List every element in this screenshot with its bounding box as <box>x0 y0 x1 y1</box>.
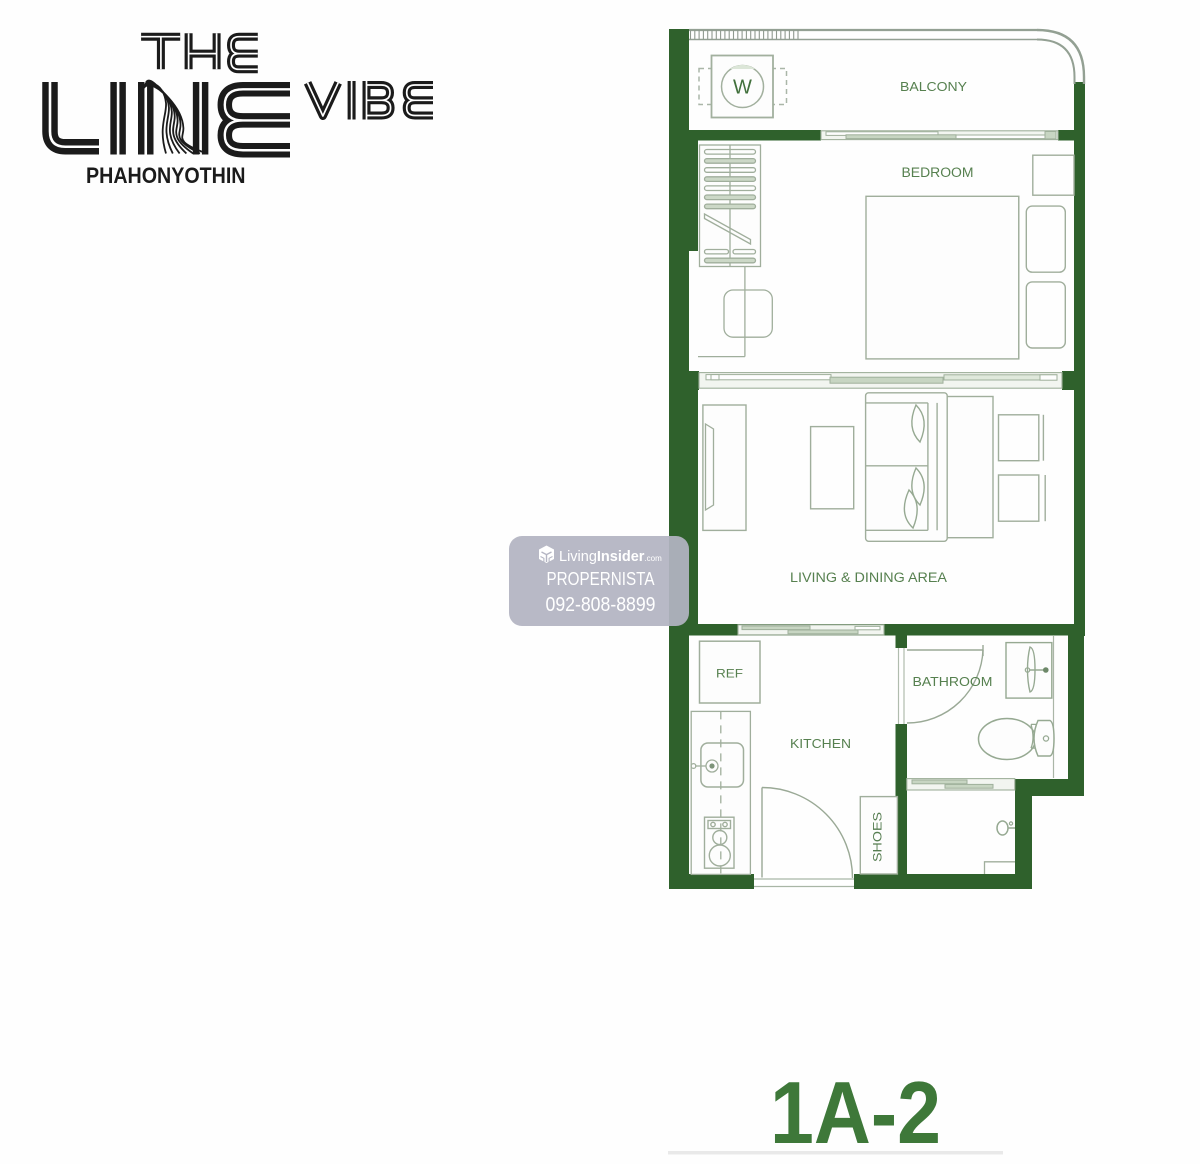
svg-text:BATHROOM: BATHROOM <box>913 674 993 689</box>
svg-text:SHOES: SHOES <box>873 812 885 862</box>
svg-text:PHAHONYOTHIN: PHAHONYOTHIN <box>86 163 246 188</box>
svg-text:1A-2: 1A-2 <box>770 1063 941 1162</box>
svg-text:W: W <box>733 77 752 99</box>
svg-text:REF: REF <box>716 667 743 681</box>
svg-text:BALCONY: BALCONY <box>900 79 967 94</box>
svg-text:PROPERNISTA: PROPERNISTA <box>547 569 655 589</box>
svg-text:KITCHEN: KITCHEN <box>790 736 851 751</box>
svg-text:092-808-8899: 092-808-8899 <box>546 594 656 616</box>
svg-text:BEDROOM: BEDROOM <box>902 165 974 180</box>
svg-text:LIVING & DINING AREA: LIVING & DINING AREA <box>790 570 947 585</box>
